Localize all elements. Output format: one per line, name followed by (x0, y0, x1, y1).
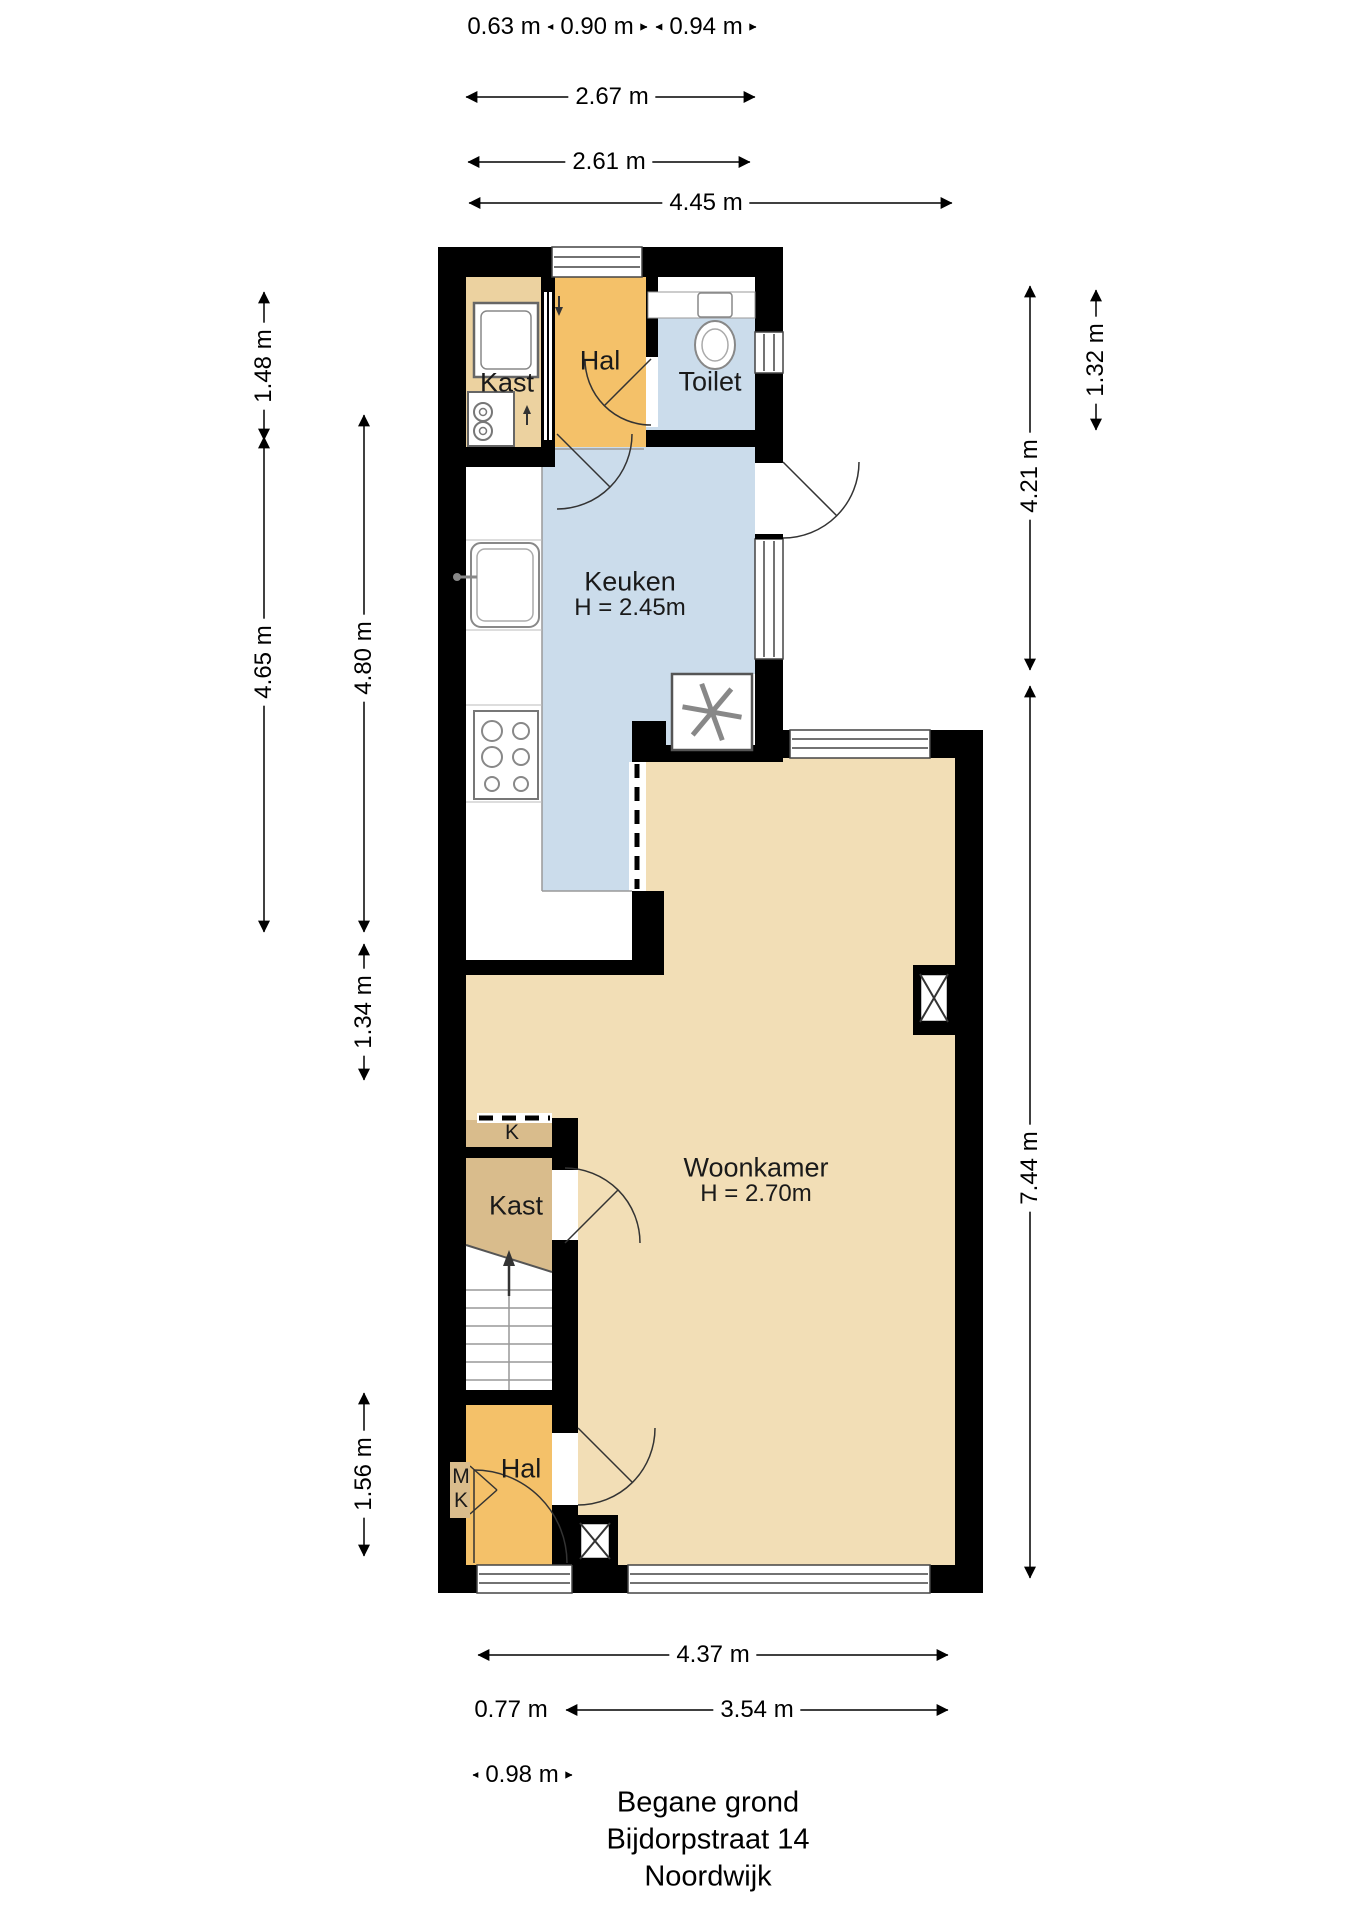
wall-k-bottom (466, 1147, 565, 1158)
dim-label-421: 4.21 m (1016, 432, 1044, 519)
dim-label-261: 2.61 m (565, 148, 652, 176)
boiler-icon (468, 392, 514, 446)
room-height-woonkamer: H = 2.70m (700, 1180, 811, 1208)
dim-label-090: 0.90 m (553, 13, 640, 41)
room-height-keuken: H = 2.45m (574, 594, 685, 622)
toilet-window (755, 332, 783, 373)
room-label-kast-top: Kast (480, 368, 534, 399)
hal-top-window (552, 247, 642, 277)
room-label-k: K (505, 1121, 519, 1145)
woonkamer-top-window (790, 730, 930, 758)
wall-right-upper-2 (755, 373, 783, 458)
floor-plan-drawing (0, 0, 1358, 1920)
wall-stairs-bottom (466, 1390, 565, 1405)
room-label-hal-top: Hal (580, 346, 621, 377)
wall-right-upper-1 (755, 247, 783, 332)
wall-keuken-stub (632, 721, 666, 762)
room-label-woonkamer: Woonkamer (683, 1153, 828, 1184)
woonkamer-bottom-window (628, 1565, 930, 1593)
floor-plan-page: Kast Hal Toilet Keuken H = 2.45m Woonkam… (0, 0, 1358, 1920)
dim-label-063: 0.63 m (460, 13, 547, 41)
keuken-window (755, 539, 783, 659)
wall-dash-stub (630, 891, 664, 975)
dim-label-480: 4.80 m (350, 614, 378, 701)
dim-label-077: 0.77 m (467, 1696, 554, 1724)
plan-title-address: Bijdorpstraat 14 (606, 1824, 809, 1857)
dim-label-132: 1.32 m (1082, 316, 1110, 403)
dim-label-744: 7.44 m (1016, 1124, 1044, 1211)
dim-label-445: 4.45 m (662, 189, 749, 217)
wall-right-upper-3 (755, 659, 783, 758)
chimney-right (913, 965, 955, 1035)
chimney-bottom (572, 1515, 618, 1565)
room-label-kast-lower: Kast (489, 1191, 543, 1222)
room-label-mk-k: K (454, 1489, 468, 1513)
slider-panel-1 (544, 292, 547, 440)
dim-label-156: 1.56 m (350, 1430, 378, 1517)
hal-bottom-window (477, 1565, 572, 1593)
wall-kast-hal-divider (541, 277, 555, 450)
room-label-toilet: Toilet (678, 367, 741, 398)
room-label-mk-m: M (452, 1465, 470, 1489)
dim-label-465: 4.65 m (250, 618, 278, 705)
room-label-hal-lower: Hal (501, 1454, 542, 1485)
room-label-keuken: Keuken (584, 567, 676, 598)
dim-label-437: 4.37 m (669, 1641, 756, 1669)
dim-label-094: 0.94 m (662, 13, 749, 41)
stove-icon (474, 711, 538, 799)
kitchen-counter-bottom (466, 891, 632, 960)
dim-label-267: 2.67 m (568, 83, 655, 111)
keuken-exterior-door (755, 458, 859, 539)
dim-label-134: 1.34 m (350, 968, 378, 1055)
washing-machine-icon (474, 303, 538, 377)
dim-label-148: 1.48 m (250, 322, 278, 409)
wall-right (955, 730, 983, 1593)
hal-lower-floor (466, 1405, 552, 1565)
wall-toilet-bottom (646, 430, 755, 447)
slider-panel-2 (549, 292, 552, 440)
plan-title-city: Noordwijk (644, 1861, 771, 1894)
dim-label-354: 3.54 m (713, 1696, 800, 1724)
plan-title-floor: Begane grond (617, 1787, 799, 1820)
wall-kast-bottom (438, 447, 555, 467)
wall-counter-bottom (466, 960, 632, 975)
dim-label-098: 0.98 m (478, 1761, 565, 1789)
woonkamer-floor-upper (646, 758, 955, 975)
ventilation-fan-icon (672, 674, 752, 750)
